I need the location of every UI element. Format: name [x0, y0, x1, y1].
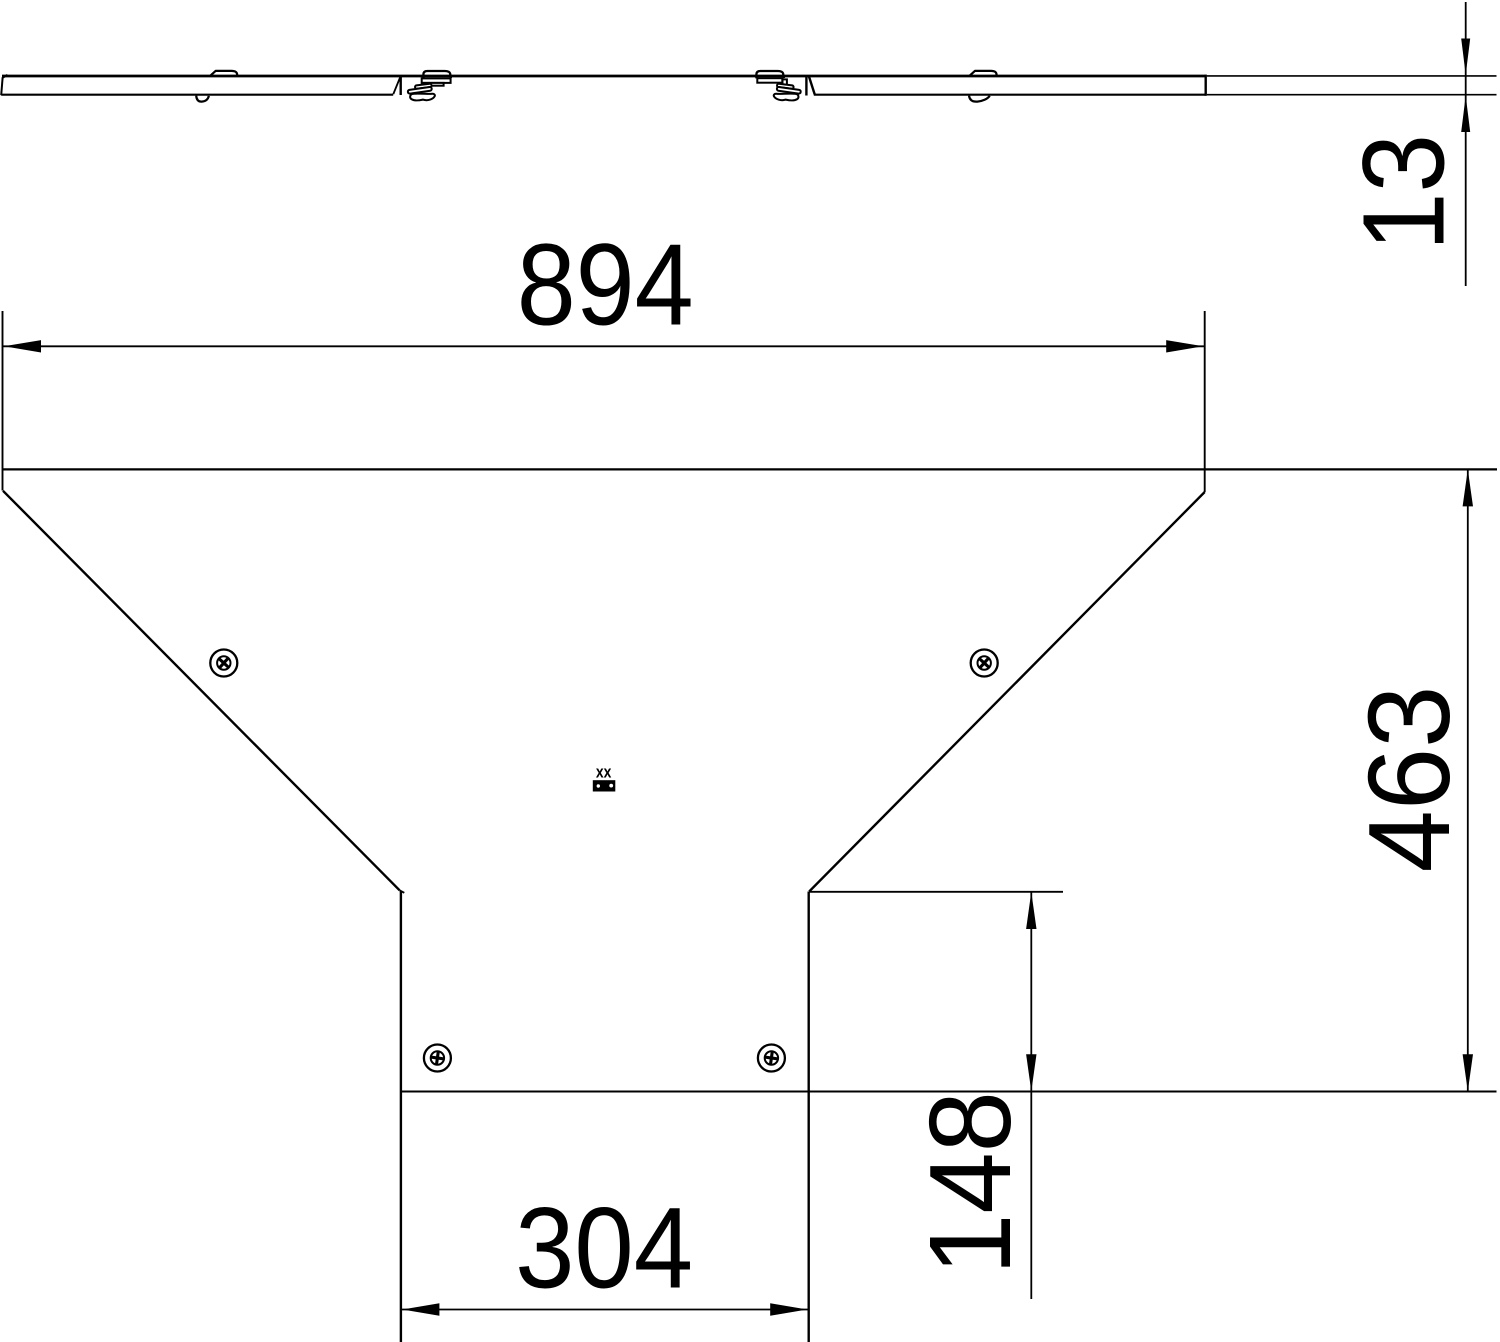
- svg-text:894: 894: [517, 220, 694, 350]
- svg-text:463: 463: [1344, 686, 1474, 873]
- svg-text:148: 148: [905, 1091, 1035, 1275]
- svg-text:304: 304: [515, 1185, 693, 1313]
- svg-text:xx: xx: [596, 763, 612, 782]
- svg-text:13: 13: [1339, 134, 1469, 251]
